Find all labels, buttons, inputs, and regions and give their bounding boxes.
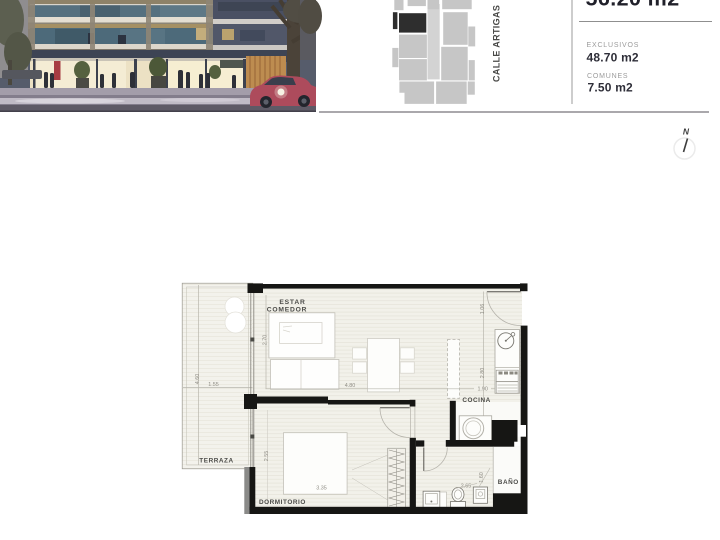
svg-text:COMEDOR: COMEDOR [267,306,308,313]
svg-text:N: N [683,127,690,137]
svg-text:COMUNES: COMUNES [587,73,628,80]
svg-text:1.06: 1.06 [480,304,486,315]
svg-text:2.70: 2.70 [263,335,269,346]
svg-text:4.60: 4.60 [195,374,201,385]
svg-text:56.20 m2: 56.20 m2 [586,0,680,11]
svg-text:EXCLUSIVOS: EXCLUSIVOS [587,42,640,49]
svg-text:3.35: 3.35 [316,485,327,491]
svg-text:4.80: 4.80 [345,383,356,389]
svg-text:1.60: 1.60 [479,472,485,483]
svg-text:DORMITORIO: DORMITORIO [259,499,306,506]
svg-text:COCINA: COCINA [462,397,491,404]
svg-text:2.55: 2.55 [264,451,270,462]
svg-text:CALLE ARTIGAS: CALLE ARTIGAS [492,5,502,82]
svg-text:1.55: 1.55 [208,382,219,388]
svg-text:ESTAR: ESTAR [279,299,305,306]
svg-text:BAÑO: BAÑO [498,477,519,486]
svg-text:TERRAZA: TERRAZA [199,457,233,464]
svg-text:2.80: 2.80 [480,368,486,379]
svg-text:48.70 m2: 48.70 m2 [587,51,639,65]
svg-text:1.90: 1.90 [477,386,488,392]
svg-text:7.50 m2: 7.50 m2 [588,81,634,95]
